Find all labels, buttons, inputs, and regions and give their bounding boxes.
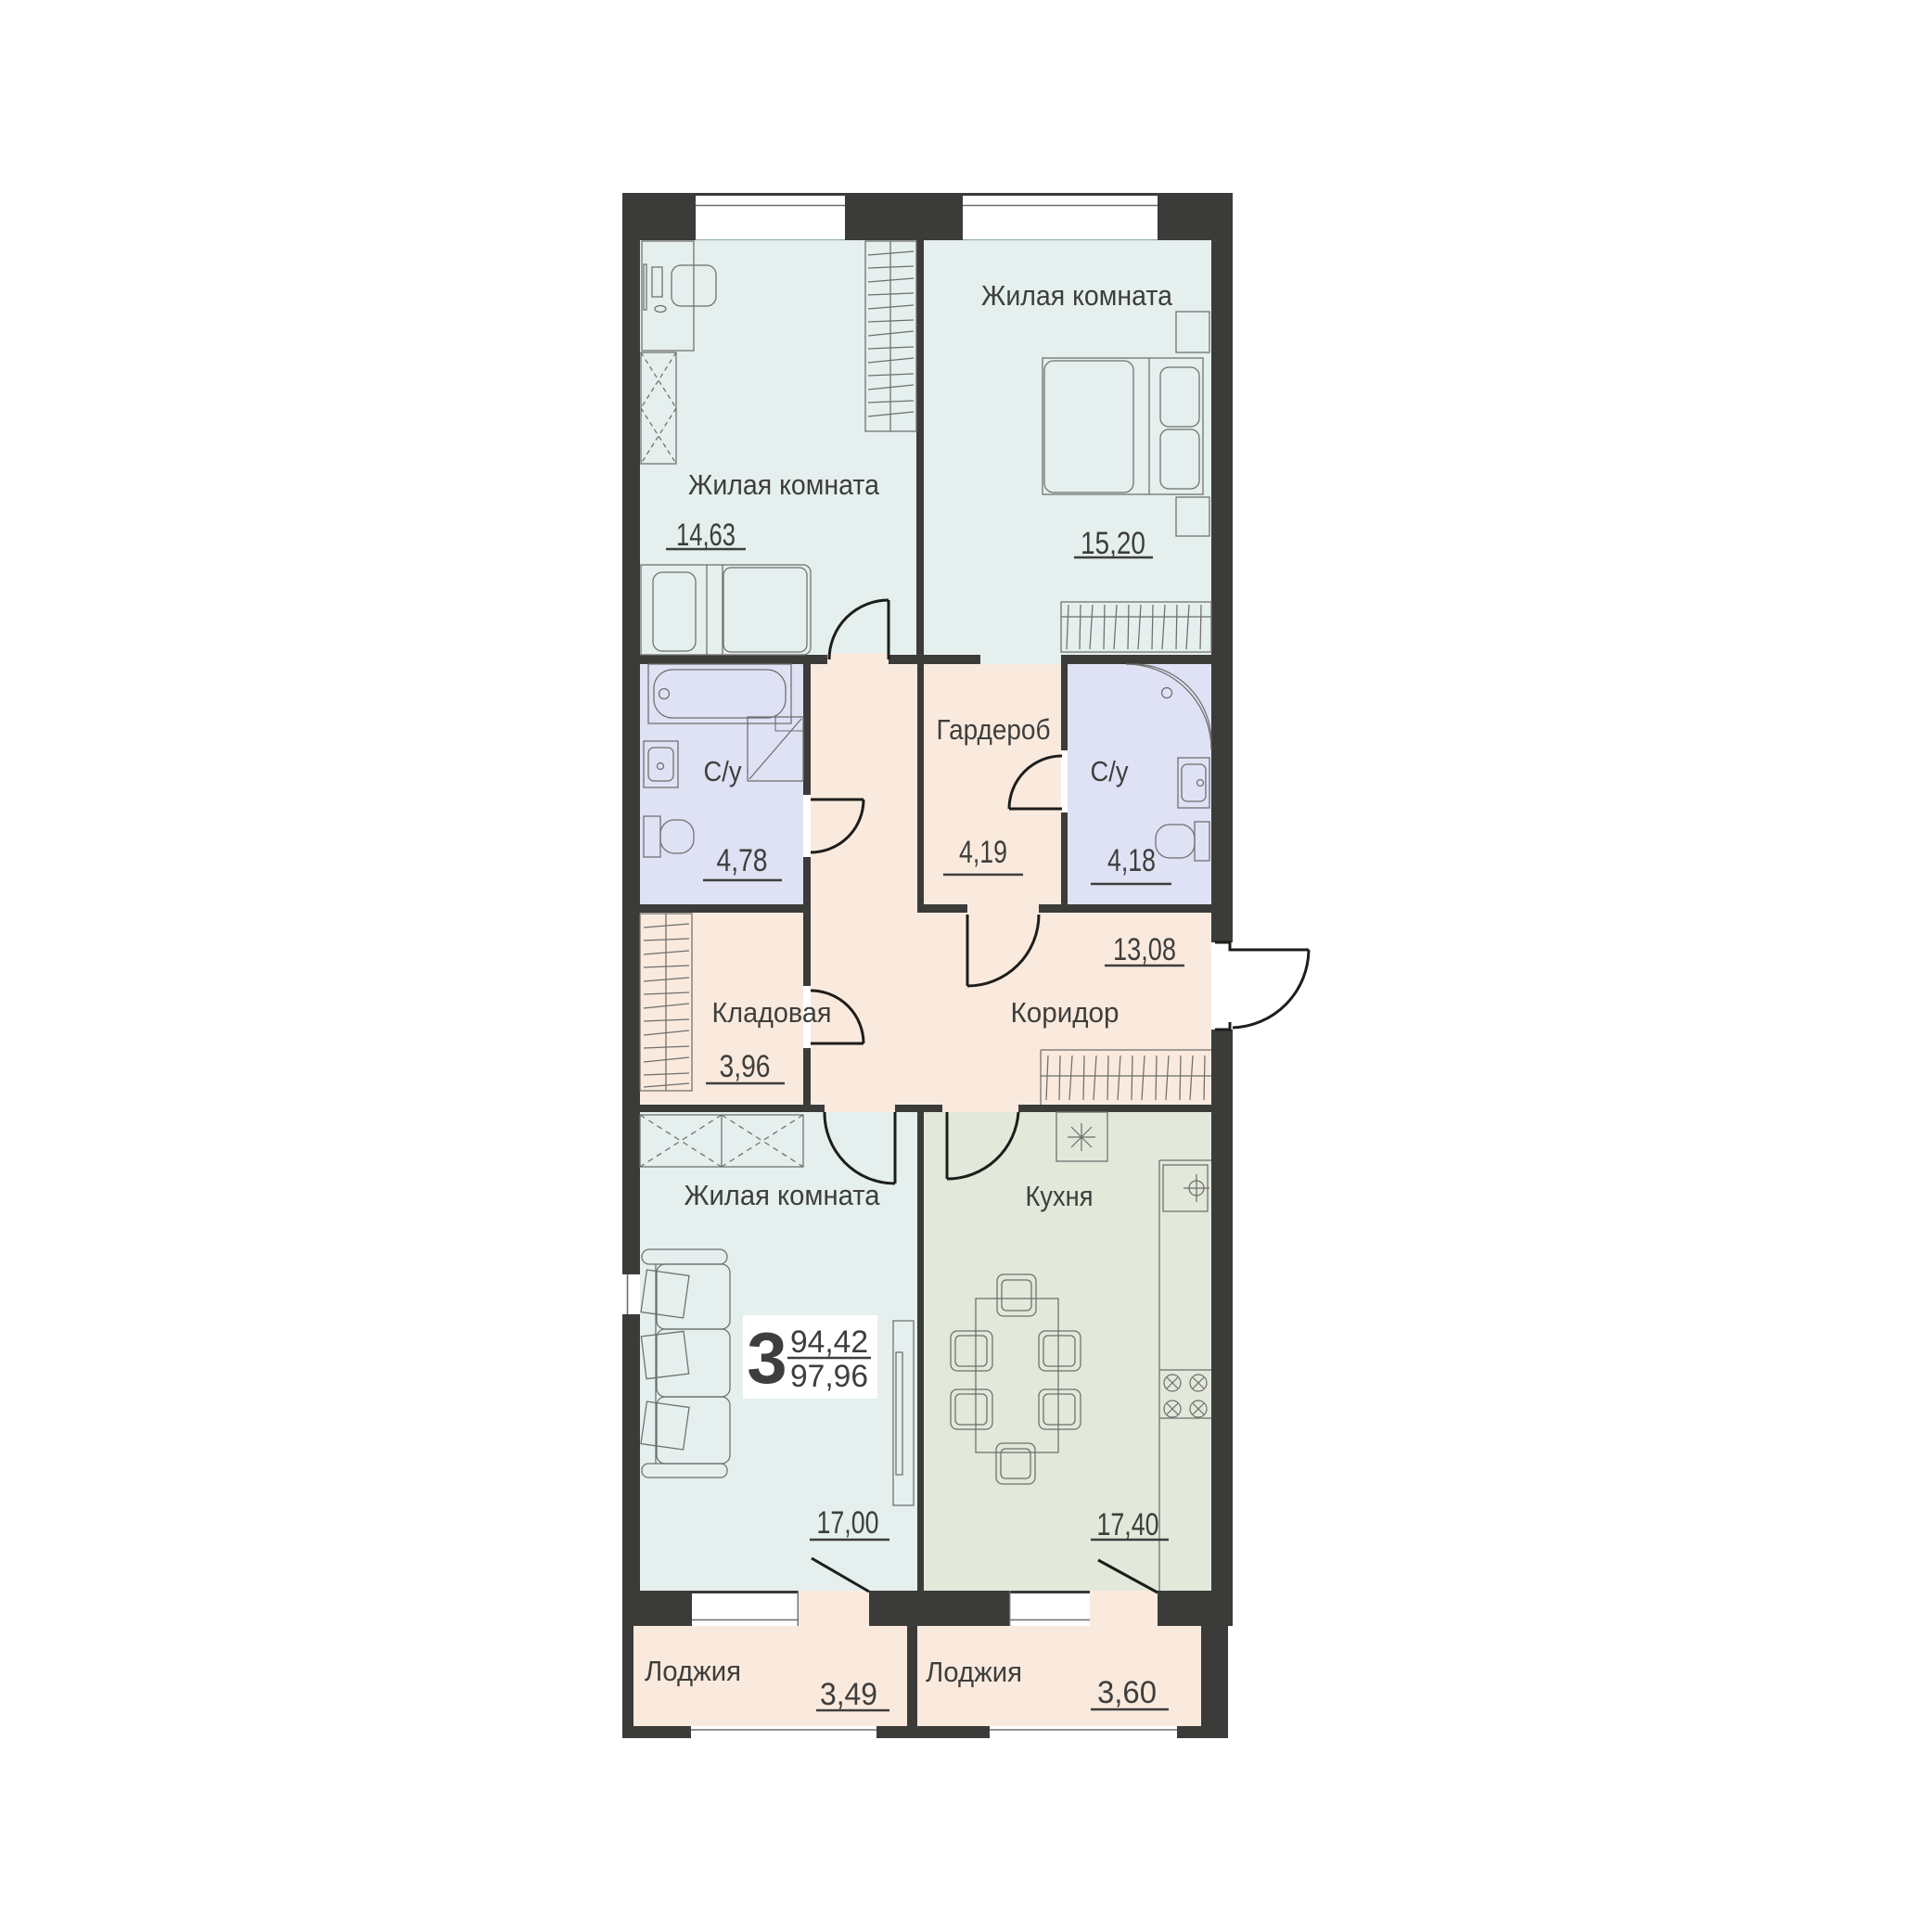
svg-text:13,08: 13,08 — [1113, 932, 1176, 967]
svg-text:97,96: 97,96 — [790, 1359, 868, 1394]
svg-text:Кухня: Кухня — [1026, 1180, 1094, 1212]
svg-text:3,96: 3,96 — [720, 1049, 771, 1084]
svg-text:3,49: 3,49 — [820, 1677, 877, 1712]
svg-text:17,40: 17,40 — [1097, 1507, 1159, 1542]
svg-text:17,00: 17,00 — [817, 1505, 879, 1541]
svg-text:Лоджия: Лоджия — [926, 1656, 1022, 1688]
svg-text:3: 3 — [747, 1317, 787, 1399]
svg-text:Жилая комната: Жилая комната — [981, 279, 1173, 312]
svg-text:Коридор: Коридор — [1011, 996, 1120, 1029]
svg-text:Жилая комната: Жилая комната — [688, 468, 880, 501]
svg-text:94,42: 94,42 — [790, 1324, 868, 1360]
svg-text:Лоджия: Лоджия — [645, 1655, 741, 1687]
svg-text:Жилая комната: Жилая комната — [685, 1179, 881, 1211]
svg-text:С/у: С/у — [1091, 755, 1129, 787]
svg-text:С/у: С/у — [704, 755, 742, 787]
svg-text:4,78: 4,78 — [717, 843, 768, 878]
svg-text:Кладовая: Кладовая — [712, 996, 832, 1029]
svg-text:4,19: 4,19 — [959, 835, 1007, 870]
svg-text:15,20: 15,20 — [1081, 526, 1145, 561]
svg-text:14,63: 14,63 — [676, 518, 736, 553]
svg-text:3,60: 3,60 — [1097, 1675, 1157, 1710]
svg-text:Гардероб: Гардероб — [937, 713, 1051, 746]
svg-text:4,18: 4,18 — [1107, 843, 1156, 878]
